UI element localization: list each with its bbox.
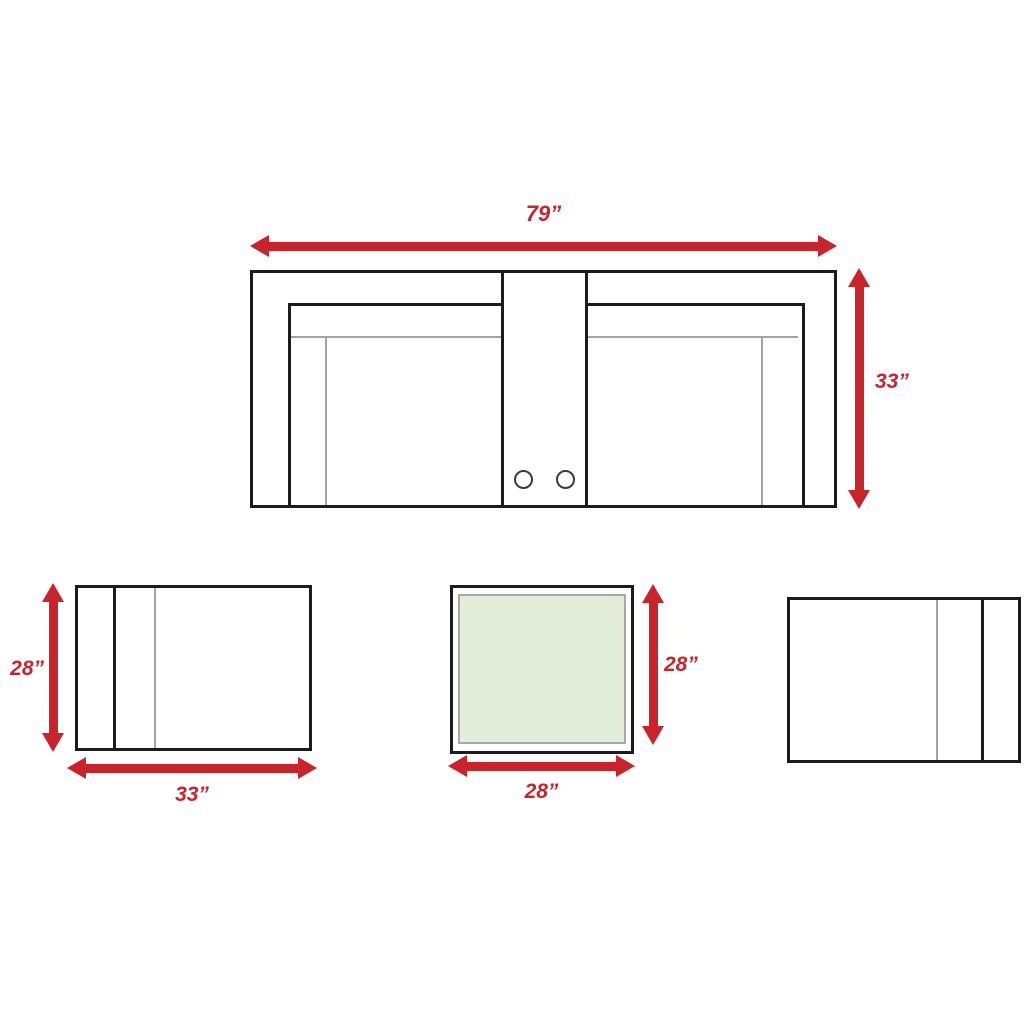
loveseat-width-arrow — [250, 234, 837, 258]
arrowhead-right-icon — [818, 235, 837, 257]
seat-left-back-line — [113, 588, 116, 748]
ottoman-width-label: 28” — [448, 781, 635, 802]
seat-left-cushion-line — [154, 588, 156, 748]
arrow-shaft — [86, 764, 298, 773]
loveseat-depth-arrow — [847, 268, 871, 509]
arrowhead-down-icon — [848, 490, 870, 509]
arrowhead-down-icon — [642, 726, 664, 745]
arrowhead-down-icon — [42, 733, 64, 752]
ottoman-height-arrow — [641, 584, 665, 745]
ottoman-cushion-surface — [458, 594, 626, 744]
loveseat-width-label: 79” — [250, 203, 837, 225]
arrow-shaft — [49, 602, 58, 733]
seat-left-width-label: 33” — [67, 784, 317, 805]
dimension-diagram: 79” 33” — [0, 0, 1024, 1024]
seat-left-outline — [75, 585, 312, 751]
arrow-shaft — [467, 762, 616, 771]
right-seat-cushion-line-v — [761, 337, 763, 505]
arrowhead-left-icon — [448, 755, 467, 777]
seat-left-width-arrow — [67, 756, 317, 780]
arrowhead-left-icon — [67, 757, 86, 779]
seat-right-back-line — [981, 600, 984, 760]
center-console — [501, 270, 588, 508]
arrowhead-up-icon — [642, 584, 664, 603]
arrow-shaft — [649, 603, 658, 726]
arrow-shaft — [269, 242, 818, 251]
seat-left-height-arrow — [41, 583, 65, 752]
cupholder-circle-icon — [556, 470, 575, 489]
left-seat-cushion-line-h — [291, 336, 501, 338]
loveseat-depth-label: 33” — [875, 371, 909, 392]
right-seat-cushion-line-h — [588, 336, 798, 338]
seat-left-height-label: 28” — [0, 658, 44, 679]
left-seat-outline — [288, 303, 501, 508]
ottoman-height-label: 28” — [664, 654, 698, 675]
arrowhead-up-icon — [848, 268, 870, 287]
right-seat-outline — [585, 303, 805, 508]
seat-right-outline — [787, 597, 1021, 763]
ottoman-width-arrow — [448, 754, 635, 778]
arrow-shaft — [855, 287, 864, 490]
arrowhead-right-icon — [298, 757, 317, 779]
left-seat-cushion-line-v — [325, 337, 327, 505]
arrowhead-up-icon — [42, 583, 64, 602]
arrowhead-right-icon — [616, 755, 635, 777]
cupholder-circle-icon — [514, 470, 533, 489]
arrowhead-left-icon — [250, 235, 269, 257]
seat-right-cushion-line — [936, 600, 938, 760]
